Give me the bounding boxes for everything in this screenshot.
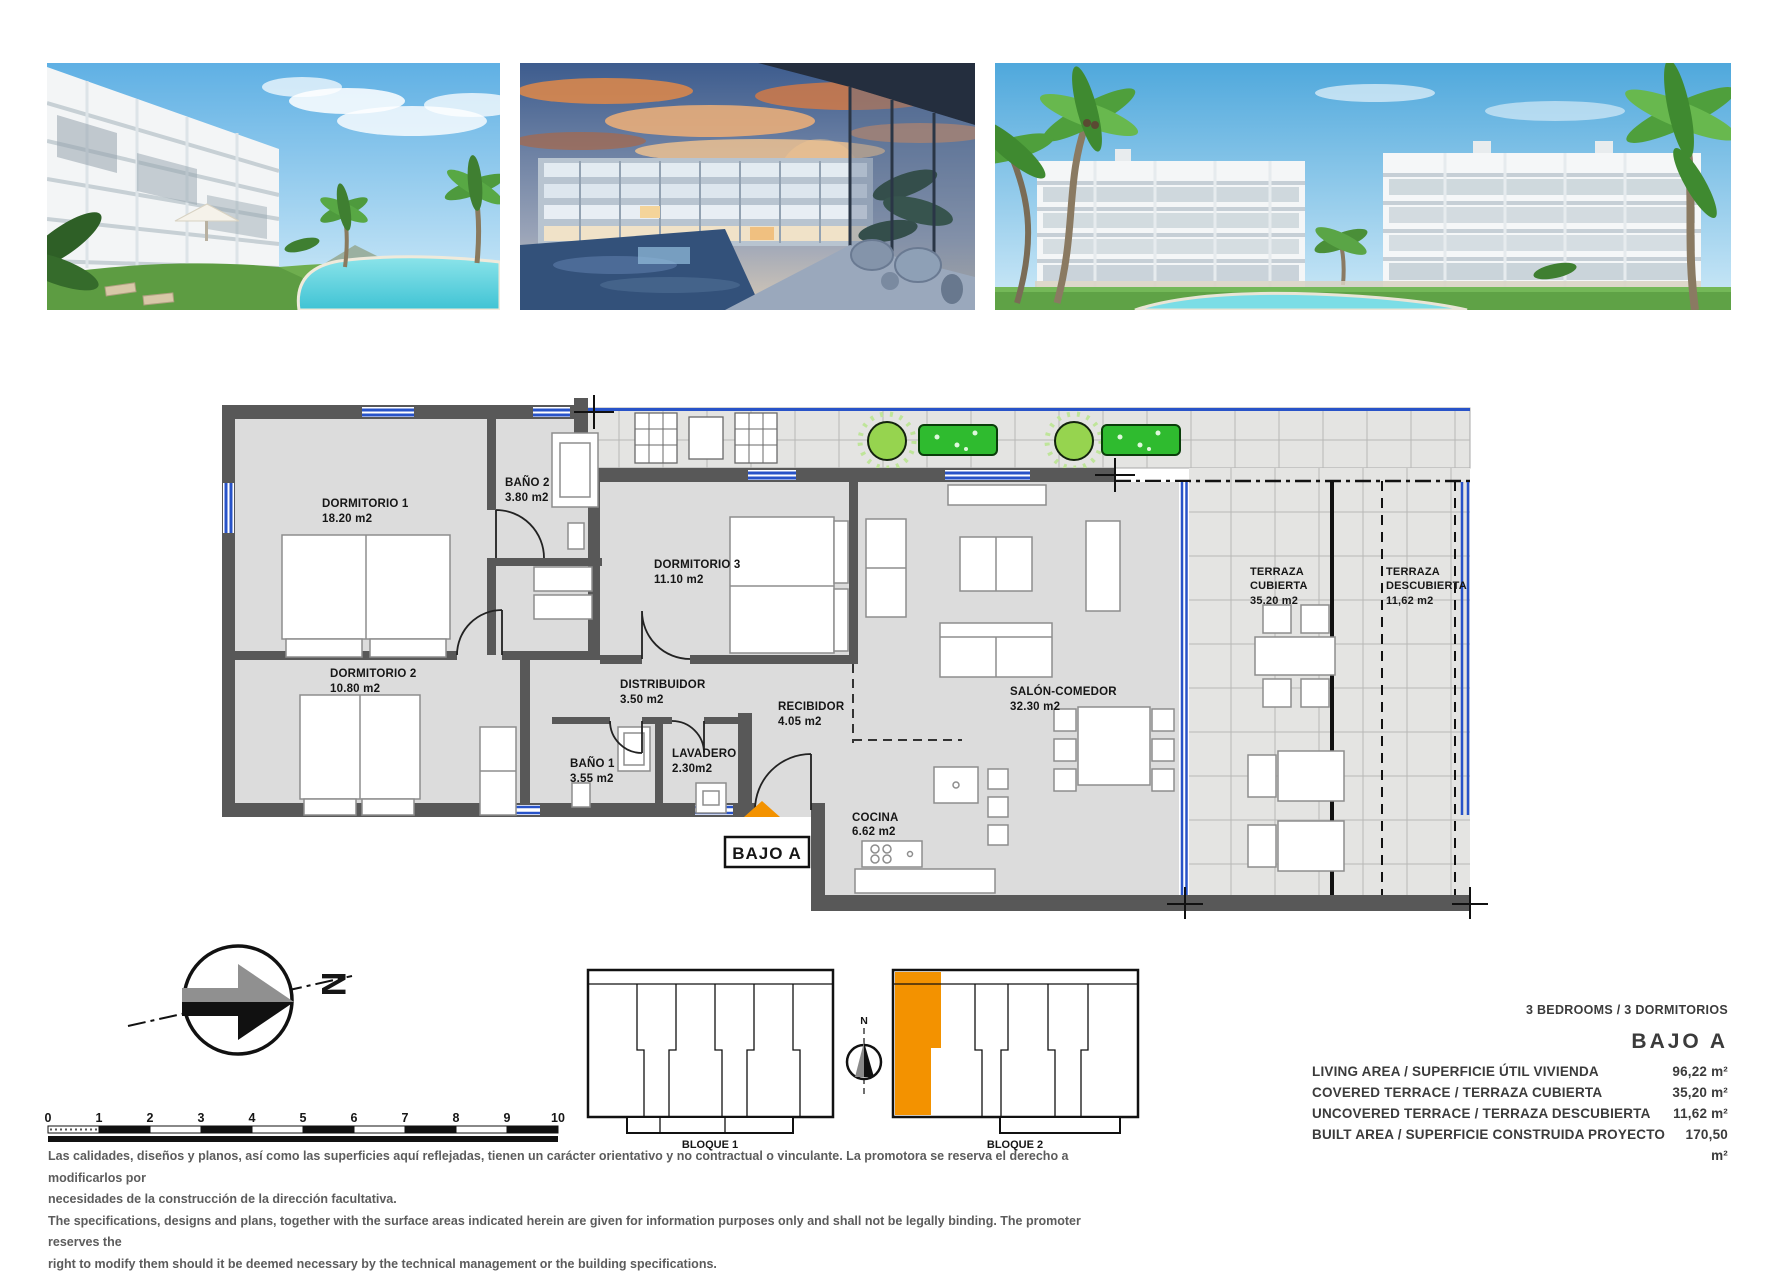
- scale-segments: [48, 1126, 558, 1133]
- spec-row-uncovered-terrace: UNCOVERED TERRACE / TERRAZA DESCUBIERTA …: [1312, 1103, 1728, 1124]
- svg-text:3: 3: [198, 1111, 205, 1125]
- svg-text:8: 8: [453, 1111, 460, 1125]
- block-plan-1: BLOQUE 1: [588, 970, 833, 1151]
- render-photo-1-art: [47, 63, 500, 310]
- svg-text:1: 1: [96, 1111, 103, 1125]
- disclaimer-en-line1: The specifications, designs and plans, t…: [48, 1211, 1088, 1254]
- room-area-cocina: 6.62 m2: [852, 826, 896, 838]
- bath2-toilet: [568, 523, 584, 549]
- room-area-terraza-descubierta: 11,62 m2: [1386, 595, 1433, 607]
- svg-text:9: 9: [504, 1111, 511, 1125]
- room-label-terraza-descubierta-1: TERRAZA: [1386, 566, 1440, 578]
- closet: [534, 567, 592, 591]
- room-label-bano-1: BAÑO 1: [570, 757, 615, 770]
- tv-unit: [1086, 521, 1120, 611]
- spec-row-living-area: LIVING AREA / SUPERFICIE ÚTIL VIVIENDA 9…: [1312, 1061, 1728, 1082]
- room-label-salon-comedor: SALÓN-COMEDOR: [1010, 685, 1117, 698]
- kitchen-counter: [855, 869, 995, 893]
- mini-north-label: N: [860, 1015, 868, 1027]
- sideboard: [948, 485, 1046, 505]
- floor-plan: BAJO A DORMITORIO 1 18.20 m2 BAÑO 2 3.80…: [222, 355, 1532, 920]
- disclaimer-es-line2: necesidades de la construcción de la dir…: [48, 1189, 1088, 1211]
- disclaimer-en-line2: right to modify them should it be deemed…: [48, 1254, 1088, 1275]
- spec-value: 11,62 m²: [1651, 1103, 1728, 1124]
- svg-text:5: 5: [300, 1111, 307, 1125]
- svg-text:7: 7: [402, 1111, 409, 1125]
- room-label-dormitorio-3: DORMITORIO 3: [654, 559, 741, 571]
- spec-label: UNCOVERED TERRACE / TERRAZA DESCUBIERTA: [1312, 1103, 1651, 1124]
- room-label-terraza-cubierta-1: TERRAZA: [1250, 566, 1304, 578]
- specs-rows: LIVING AREA / SUPERFICIE ÚTIL VIVIENDA 9…: [1312, 1061, 1728, 1166]
- room-label-distribuidor: DISTRIBUIDOR: [620, 679, 706, 691]
- right-building: [1383, 141, 1701, 288]
- render-photo-3-art: [995, 63, 1731, 310]
- block-key-plans: BLOQUE 1 N BLOQUE 2: [575, 955, 1155, 1160]
- spec-label: LIVING AREA / SUPERFICIE ÚTIL VIVIENDA: [1312, 1061, 1628, 1082]
- block-plan-2: BLOQUE 2: [893, 970, 1138, 1151]
- svg-text:4: 4: [249, 1111, 256, 1125]
- room-label-bano-2: BAÑO 2: [505, 476, 550, 489]
- unit-label: BAJO A: [732, 844, 802, 863]
- specs-panel: 3 BEDROOMS / 3 DORMITORIOS BAJO A LIVING…: [1312, 1003, 1728, 1166]
- spec-row-covered-terrace: COVERED TERRACE / TERRAZA CUBIERTA 35,20…: [1312, 1082, 1728, 1103]
- room-area-dormitorio-3: 11.10 m2: [654, 574, 704, 586]
- room-label-terraza-cubierta-2: CUBIERTA: [1250, 580, 1308, 592]
- spec-label: COVERED TERRACE / TERRAZA CUBIERTA: [1312, 1082, 1628, 1103]
- render-photo-terrace-dusk: [520, 63, 975, 310]
- room-label-dormitorio-1: DORMITORIO 1: [322, 498, 409, 510]
- render-photo-buildings-day: [995, 63, 1731, 310]
- room-area-recibidor: 4.05 m2: [778, 716, 822, 728]
- svg-text:0: 0: [45, 1111, 52, 1125]
- room-area-dormitorio-2: 10.80 m2: [330, 683, 380, 695]
- room-area-dormitorio-1: 18.20 m2: [322, 513, 372, 525]
- spec-label: BUILT AREA / SUPERFICIE CONSTRUIDA PROYE…: [1312, 1124, 1665, 1166]
- svg-text:2: 2: [147, 1111, 154, 1125]
- svg-text:6: 6: [351, 1111, 358, 1125]
- bedrooms-line: 3 BEDROOMS / 3 DORMITORIOS: [1312, 1003, 1728, 1017]
- pool: [298, 257, 500, 310]
- patio-strip: [575, 408, 1470, 468]
- room-label-dormitorio-2: DORMITORIO 2: [330, 668, 417, 680]
- scale-bar: 01 23 45 67 89 10: [38, 1098, 578, 1150]
- bath1-toilet: [572, 783, 590, 807]
- spec-value: 96,22 m²: [1628, 1061, 1728, 1082]
- spec-value: 170,50 m²: [1665, 1124, 1728, 1166]
- render-photo-2-art: [520, 63, 975, 310]
- room-area-salon-comedor: 32.30 m2: [1010, 701, 1060, 713]
- room-label-lavadero: LAVADERO: [672, 748, 736, 760]
- disclaimer: Las calidades, diseños y planos, así com…: [48, 1146, 1088, 1275]
- north-label: N: [314, 972, 352, 997]
- spec-row-built-area: BUILT AREA / SUPERFICIE CONSTRUIDA PROYE…: [1312, 1124, 1728, 1166]
- room-area-lavadero: 2.30m2: [672, 763, 712, 775]
- patio-tables: [635, 413, 777, 463]
- room-label-recibidor: RECIBIDOR: [778, 701, 845, 713]
- room-label-cocina: COCINA: [852, 812, 899, 824]
- room-area-bano-1: 3.55 m2: [570, 773, 614, 785]
- svg-text:10: 10: [551, 1111, 565, 1125]
- compass-rose: N: [120, 928, 370, 1060]
- specs-unit-title: BAJO A: [1312, 1030, 1728, 1054]
- room-label-terraza-descubierta-2: DESCUBIERTA: [1386, 580, 1467, 592]
- scale-tick-labels: 01 23 45 67 89 10: [45, 1111, 565, 1125]
- room-area-distribuidor: 3.50 m2: [620, 694, 664, 706]
- disclaimer-es-line1: Las calidades, diseños y planos, así com…: [48, 1146, 1088, 1189]
- render-photo-pool-day: [47, 63, 500, 310]
- spec-value: 35,20 m²: [1628, 1082, 1728, 1103]
- room-area-terraza-cubierta: 35.20 m2: [1250, 595, 1298, 607]
- room-area-bano-2: 3.80 m2: [505, 492, 549, 504]
- bed-dormitorio-3: [730, 517, 834, 653]
- dining-table: [1078, 707, 1150, 785]
- mini-compass: N: [847, 1015, 881, 1096]
